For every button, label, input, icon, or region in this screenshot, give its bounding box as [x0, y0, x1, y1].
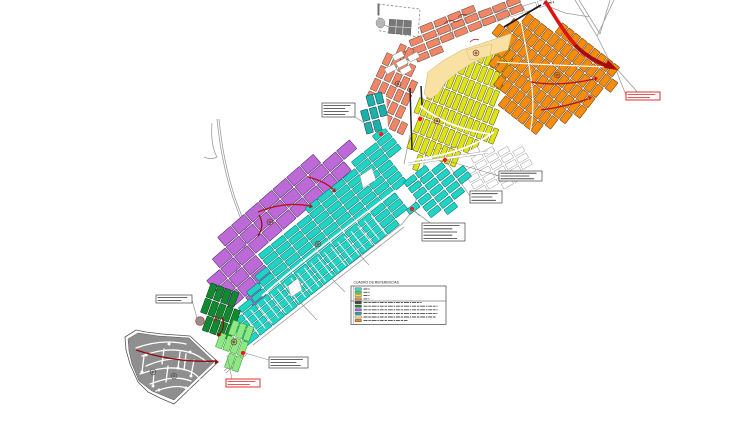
svg-text:CUADRO DE REFERENCIAS: CUADRO DE REFERENCIAS	[354, 281, 400, 285]
